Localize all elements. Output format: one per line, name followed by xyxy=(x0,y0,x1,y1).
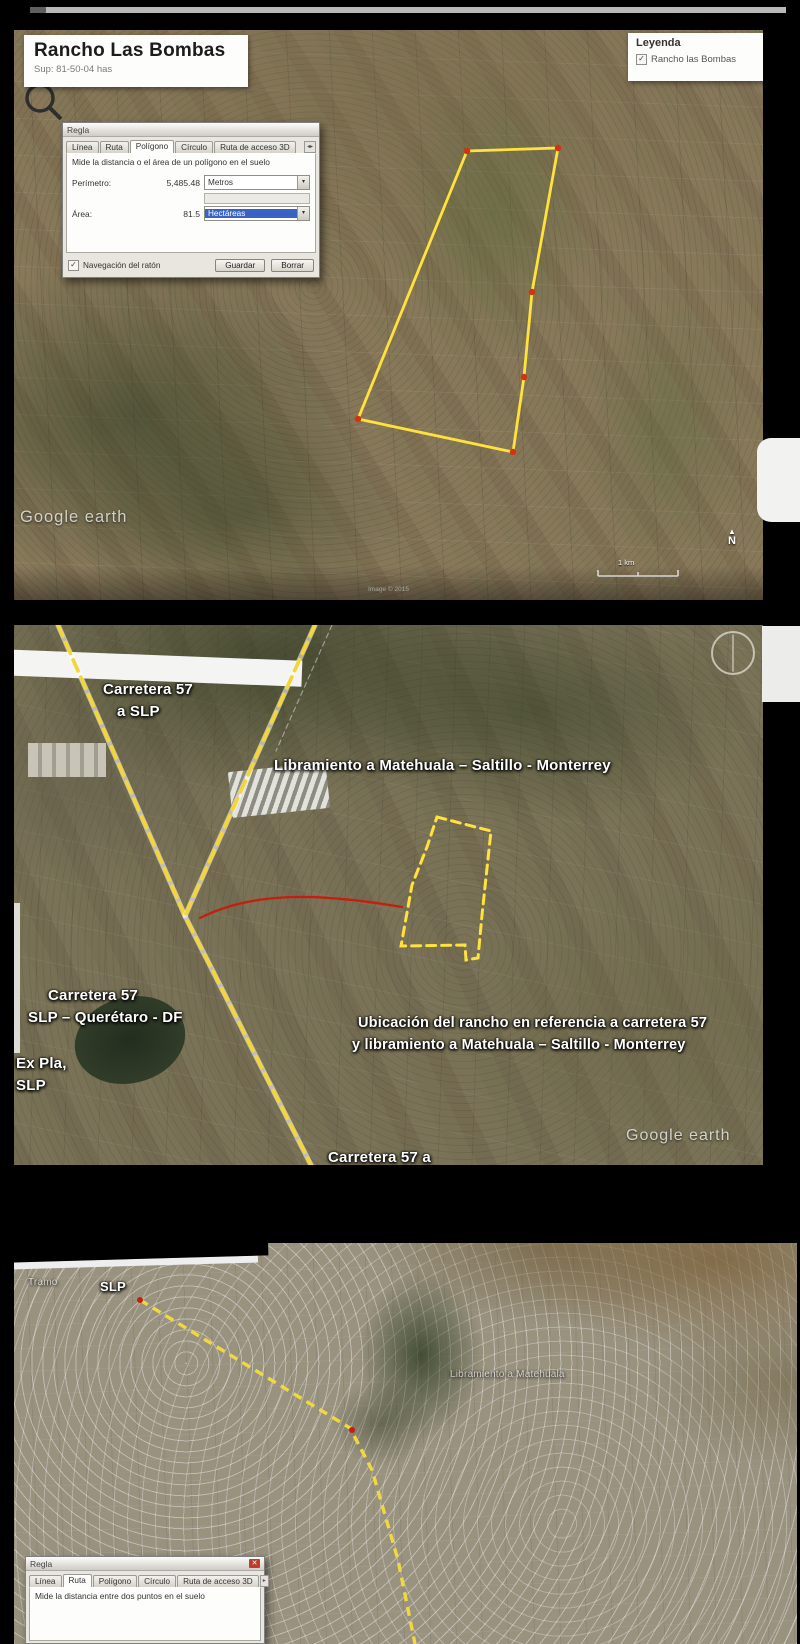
chevron-down-icon[interactable]: ▾ xyxy=(297,176,309,189)
label-faint-road: Libramiento a Matehuala xyxy=(450,1369,565,1380)
save-button[interactable]: Guardar xyxy=(215,259,265,272)
north-letter: N xyxy=(728,536,736,547)
map-subtitle: Sup: 81-50-04 has xyxy=(34,64,238,75)
label-hwy57-slp-2: a SLP xyxy=(117,703,160,720)
map-title-box: Rancho Las Bombas Sup: 81-50-04 has xyxy=(24,35,248,87)
page-background: Rancho Las Bombas Sup: 81-50-04 has Leye… xyxy=(0,0,800,1644)
mouse-navigation-checkbox[interactable]: ✓ xyxy=(68,260,79,271)
close-icon[interactable]: ✕ xyxy=(249,1559,260,1568)
ranch-outline-dashed xyxy=(401,817,491,960)
map1-bottom-shade xyxy=(14,566,763,600)
area-unit-select[interactable]: Hectáreas ▾ xyxy=(204,206,310,221)
label-libramiento: Libramiento a Matehuala – Saltillo - Mon… xyxy=(274,757,611,774)
map-title: Rancho Las Bombas xyxy=(34,40,238,62)
ruler-dialog-title: Regla xyxy=(30,1559,52,1569)
label-faint-town: Tramo xyxy=(28,1277,58,1288)
tabs-scroll-arrow-icon[interactable]: ◂▸ xyxy=(304,141,316,153)
top-edge-strip-cap xyxy=(30,7,46,13)
chevron-down-icon[interactable]: ▾ xyxy=(297,207,309,220)
ruler-dialog-body: Mide la distancia entre dos puntos en el… xyxy=(29,1587,261,1641)
tab-linea[interactable]: Línea xyxy=(66,141,99,153)
mouse-navigation-label: Navegación del ratón xyxy=(83,261,160,270)
area-unit-value: Hectáreas xyxy=(205,209,297,218)
tab-poligono[interactable]: Polígono xyxy=(93,1575,137,1587)
perimeter-unit-select[interactable]: Metros ▾ xyxy=(204,175,310,190)
tab-poligono[interactable]: Polígono xyxy=(130,140,174,153)
satellite-map-rancho[interactable]: Rancho Las Bombas Sup: 81-50-04 has Leye… xyxy=(14,30,763,600)
legend-panel: Leyenda ✓ Rancho las Bombas xyxy=(628,33,763,81)
sidebar-pull-tab[interactable] xyxy=(757,438,800,522)
ranch-boundary-polygon xyxy=(358,148,558,452)
tab-circulo[interactable]: Círculo xyxy=(138,1575,176,1587)
tabs-scroll-arrow-icon[interactable]: ▸ xyxy=(260,1575,269,1587)
tab-ruta-3d[interactable]: Ruta de acceso 3D xyxy=(214,141,296,153)
tab-circulo[interactable]: Círculo xyxy=(175,141,213,153)
google-earth-watermark: Google earth xyxy=(626,1127,731,1145)
satellite-map-roads[interactable]: Carretera 57 a SLP Libramiento a Matehua… xyxy=(14,625,763,1165)
clear-button[interactable]: Borrar xyxy=(271,259,314,272)
ruler-dialog-body: Mide la distancia o el área de un polígo… xyxy=(66,153,316,253)
google-earth-watermark: Google earth xyxy=(20,508,127,527)
tab-ruta[interactable]: Ruta xyxy=(63,1574,92,1587)
label-hwy57-slp-1: Carretera 57 xyxy=(103,681,193,698)
legend-item-label: Rancho las Bombas xyxy=(651,54,736,65)
legend-title: Leyenda xyxy=(636,37,755,49)
access-road-red-line xyxy=(200,897,402,918)
label-ex-pla-1: Ex Pla, xyxy=(16,1055,67,1072)
north-compass: ▲ N xyxy=(728,528,736,547)
perimeter-label: Perímetro: xyxy=(72,178,142,188)
search-magnifier-icon[interactable] xyxy=(27,85,61,119)
tab-ruta[interactable]: Ruta xyxy=(100,141,129,153)
area-value: 81.5 xyxy=(183,209,200,219)
label-slp-city: SLP xyxy=(100,1279,126,1294)
ruler-dialog[interactable]: Regla Línea Ruta Polígono Círculo Ruta d… xyxy=(62,122,320,278)
ruler-dialog-tabs: Línea Ruta Polígono Círculo Ruta de acce… xyxy=(63,137,319,153)
label-ex-pla-2: SLP xyxy=(16,1077,46,1094)
ruler-dialog-title: Regla xyxy=(67,125,89,135)
unit-dropdown-track xyxy=(204,193,310,204)
label-hwy57-qro-1: Carretera 57 a xyxy=(328,1149,431,1165)
area-label: Área: xyxy=(72,209,142,219)
label-ubicacion-2: y libramiento a Matehuala – Saltillo - M… xyxy=(352,1037,686,1053)
ruler-dialog-description: Mide la distancia entre dos puntos en el… xyxy=(35,1591,255,1601)
tab-linea[interactable]: Línea xyxy=(29,1575,62,1587)
ruler-dialog-titlebar[interactable]: Regla xyxy=(63,123,319,137)
ruler-dialog-tabs: Línea Ruta Polígono Círculo Ruta de acce… xyxy=(26,1571,264,1587)
label-hwy57-mid-1: Carretera 57 xyxy=(48,987,138,1004)
slide-background-corner xyxy=(762,626,800,702)
legend-checkbox[interactable]: ✓ xyxy=(636,54,647,65)
perimeter-unit-value: Metros xyxy=(205,178,297,187)
ruler-dialog-bottom[interactable]: Regla ✕ Línea Ruta Polígono Círculo Ruta… xyxy=(25,1556,265,1644)
label-ubicacion-1: Ubicación del rancho en referencia a car… xyxy=(358,1015,707,1031)
perimeter-value: 5,485.48 xyxy=(167,178,200,188)
ruler-dialog-description: Mide la distancia o el área de un polígo… xyxy=(72,157,310,167)
highway-57-casing xyxy=(58,625,311,1165)
top-edge-strip xyxy=(30,7,786,13)
ruler-dialog-titlebar[interactable]: Regla ✕ xyxy=(26,1557,264,1571)
label-hwy57-mid-2: SLP – Querétaro - DF xyxy=(28,1009,183,1026)
tab-ruta-3d[interactable]: Ruta de acceso 3D xyxy=(177,1575,259,1587)
satellite-map-region[interactable]: SLP Tramo Libramiento a Matehuala Regla … xyxy=(14,1243,797,1644)
